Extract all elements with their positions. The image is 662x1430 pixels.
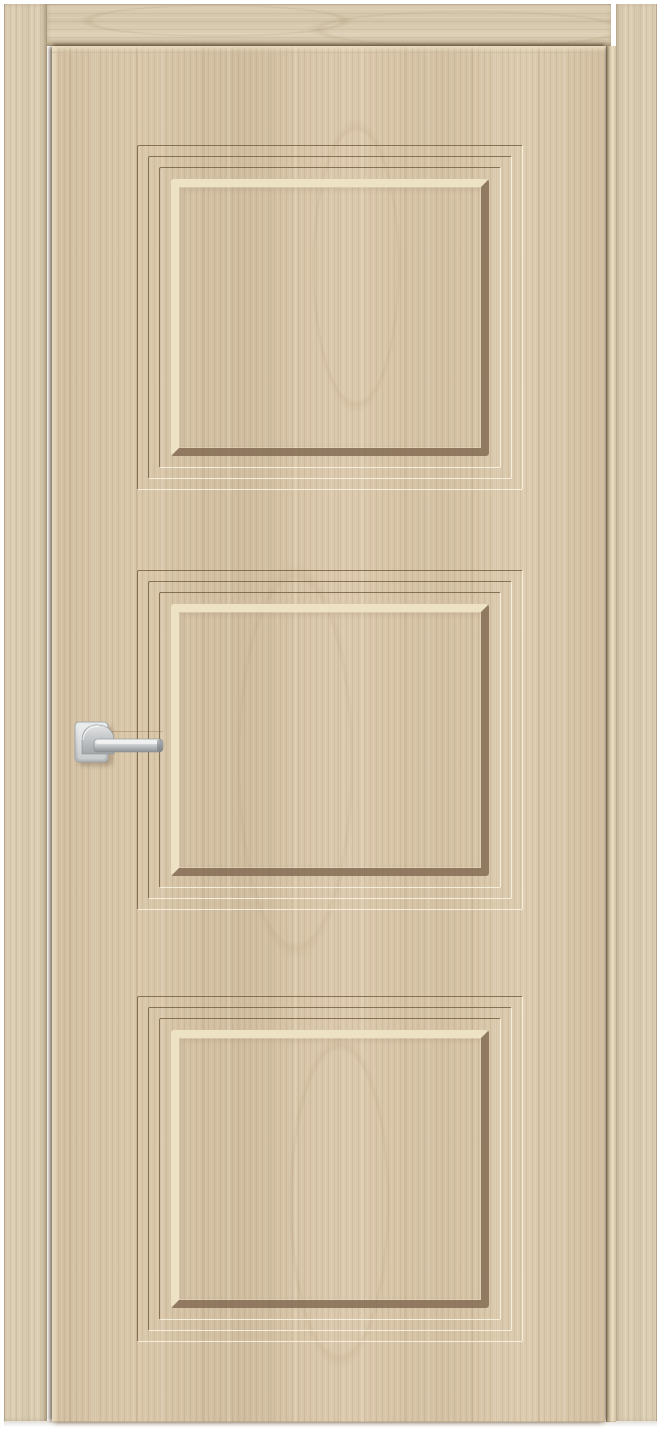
lever-handle xyxy=(70,714,170,770)
panel-bevel-field xyxy=(171,604,489,876)
panel-bevel-field xyxy=(171,179,489,456)
panel-bevel-field xyxy=(171,1030,489,1308)
door-panel-bottom xyxy=(137,996,523,1342)
door-panel-top xyxy=(137,145,523,490)
door-frame-head-jamb xyxy=(47,4,611,46)
door-frame-right-reveal xyxy=(606,46,616,1422)
door-frame-right-jamb xyxy=(616,4,657,1421)
handle-lever-highlight xyxy=(96,741,160,745)
door-frame-left-jamb xyxy=(4,4,47,1421)
product-photo xyxy=(0,0,662,1430)
door-panel-middle xyxy=(137,570,523,910)
handle-lever-tip xyxy=(157,740,163,752)
floor-shadow xyxy=(4,1421,657,1427)
